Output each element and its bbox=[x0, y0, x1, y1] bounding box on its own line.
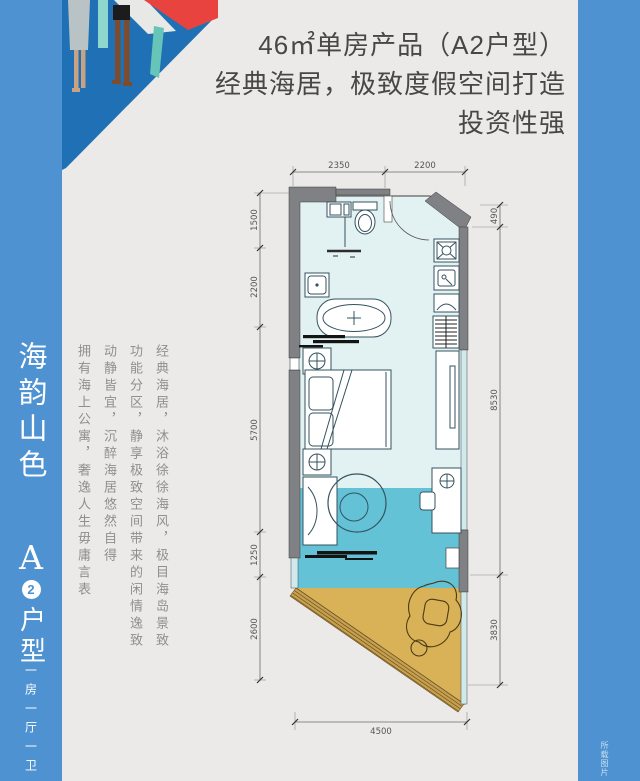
unit-number-badge: 2 bbox=[22, 580, 41, 599]
poster: 46㎡单房产品（A2户型） 经典海居，极致度假空间打造 投资性强 海韵山色 A … bbox=[0, 0, 640, 781]
counter bbox=[434, 294, 459, 312]
dimension-top: 2350 2200 bbox=[290, 161, 468, 188]
toilet-icon bbox=[353, 202, 377, 234]
description-columns: 经典海居，沐浴徐徐海风，极目海岛景致 功能分区，静享极致空间带来的闲情逸致 动静… bbox=[70, 344, 174, 684]
stool bbox=[420, 492, 435, 510]
project-name: 海韵山色 bbox=[0, 341, 62, 485]
watermark-text: 所载图片 bbox=[599, 741, 610, 777]
nightstand-bottom bbox=[303, 449, 331, 475]
headline: 46㎡单房产品（A2户型） 经典海居，极致度假空间打造 投资性强 bbox=[215, 26, 566, 143]
dim-left-5: 2600 bbox=[250, 618, 260, 640]
window-left bbox=[290, 358, 299, 370]
project-name-text: 海韵山色 bbox=[10, 341, 52, 485]
wall-right-lower bbox=[459, 530, 468, 592]
sink-icon bbox=[434, 266, 459, 290]
beach-illustration bbox=[62, 0, 218, 170]
dim-top-2: 2200 bbox=[414, 161, 436, 171]
bath-cabinet bbox=[327, 202, 351, 217]
headline-line1: 46㎡单房产品（A2户型） bbox=[215, 26, 566, 65]
dimension-left: 1500 2200 5700 1250 2600 bbox=[250, 190, 289, 683]
wall-top bbox=[336, 189, 390, 195]
bathtub-icon bbox=[317, 299, 391, 337]
dim-left-1: 1500 bbox=[250, 209, 260, 231]
wall-left bbox=[289, 370, 300, 558]
floor-plan: 2350 2200 1500 2200 5700 1250 2600 bbox=[240, 155, 530, 770]
dim-right-1: 490 bbox=[490, 208, 500, 224]
right-blue-strip bbox=[578, 0, 640, 781]
wardrobe bbox=[436, 351, 459, 449]
dim-left-3: 5700 bbox=[250, 419, 260, 441]
layout-summary: 一房一厅一卫 bbox=[0, 664, 62, 778]
headline-line2: 经典海居，极致度假空间打造 bbox=[215, 65, 566, 104]
stove-icon bbox=[434, 239, 459, 262]
description-col1: 经典海居，沐浴徐徐海风，极目海岛景致 bbox=[148, 344, 174, 684]
headline-line3: 投资性强 bbox=[215, 104, 566, 143]
kitchenette bbox=[433, 239, 459, 348]
description-col4: 拥有海上公寓，奢逸人生毋庸言表 bbox=[70, 344, 96, 684]
fridge-icon bbox=[433, 316, 459, 348]
unit-letter: A bbox=[19, 543, 43, 573]
unit-suffix: 户型 bbox=[13, 606, 50, 668]
glass-right-lower bbox=[461, 592, 467, 704]
dimension-right: 490 8530 3830 bbox=[468, 202, 508, 688]
wall-unit bbox=[446, 548, 459, 568]
dim-bottom-1: 4500 bbox=[370, 727, 392, 737]
dim-right-3: 3830 bbox=[490, 619, 500, 641]
dim-left-4: 1250 bbox=[250, 544, 260, 566]
dim-right-2: 8530 bbox=[490, 389, 500, 411]
wall-right-upper bbox=[459, 227, 468, 350]
glass-right-upper bbox=[461, 350, 467, 530]
description-col2: 功能分区，静享极致空间带来的闲情逸致 bbox=[122, 344, 148, 684]
unit-label: A 2 户型 bbox=[0, 543, 62, 668]
dimension-bottom: 4500 bbox=[292, 712, 470, 737]
description-col3: 动静皆宜，沉醉海居悠然自得 bbox=[96, 344, 122, 684]
layout-summary-text: 一房一厅一卫 bbox=[23, 664, 40, 778]
glass-left bbox=[291, 558, 298, 588]
dim-top-1: 2350 bbox=[328, 161, 350, 171]
dim-left-2: 2200 bbox=[250, 276, 260, 298]
bed bbox=[305, 370, 391, 449]
tv-console bbox=[303, 477, 337, 545]
towel-icon bbox=[98, 0, 108, 48]
washbasin-icon bbox=[305, 273, 329, 297]
